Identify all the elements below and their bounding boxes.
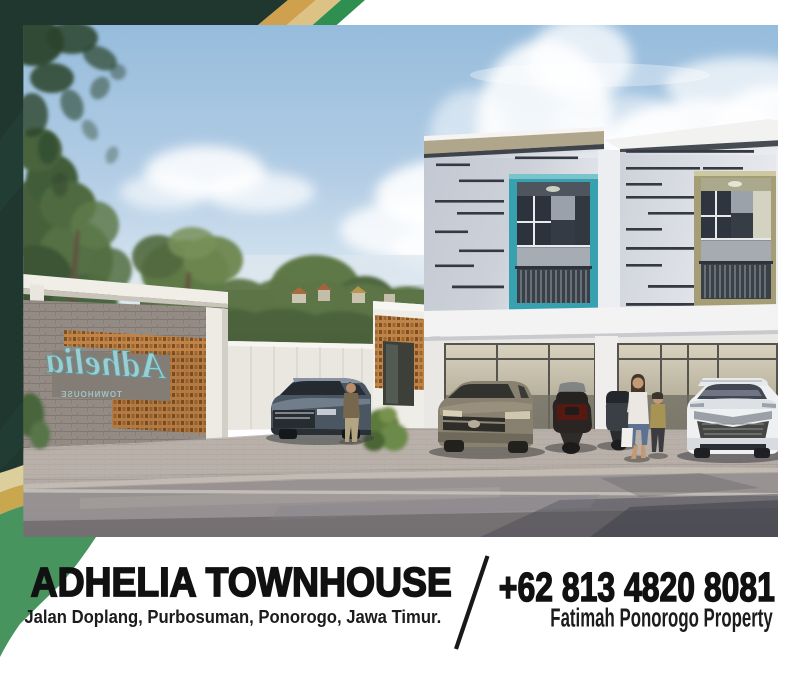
svg-text:Fatimah Ponorogo Property: Fatimah Ponorogo Property: [550, 603, 772, 633]
svg-text:TOWNHOUSE: TOWNHOUSE: [60, 390, 122, 399]
svg-text:Adhelia: Adhelia: [45, 340, 168, 387]
svg-text:ADHELIA TOWNHOUSE: ADHELIA TOWNHOUSE: [31, 561, 452, 606]
svg-text:Jalan Doplang, Purbosuman, Pon: Jalan Doplang, Purbosuman, Ponorogo, Jaw…: [24, 606, 441, 627]
